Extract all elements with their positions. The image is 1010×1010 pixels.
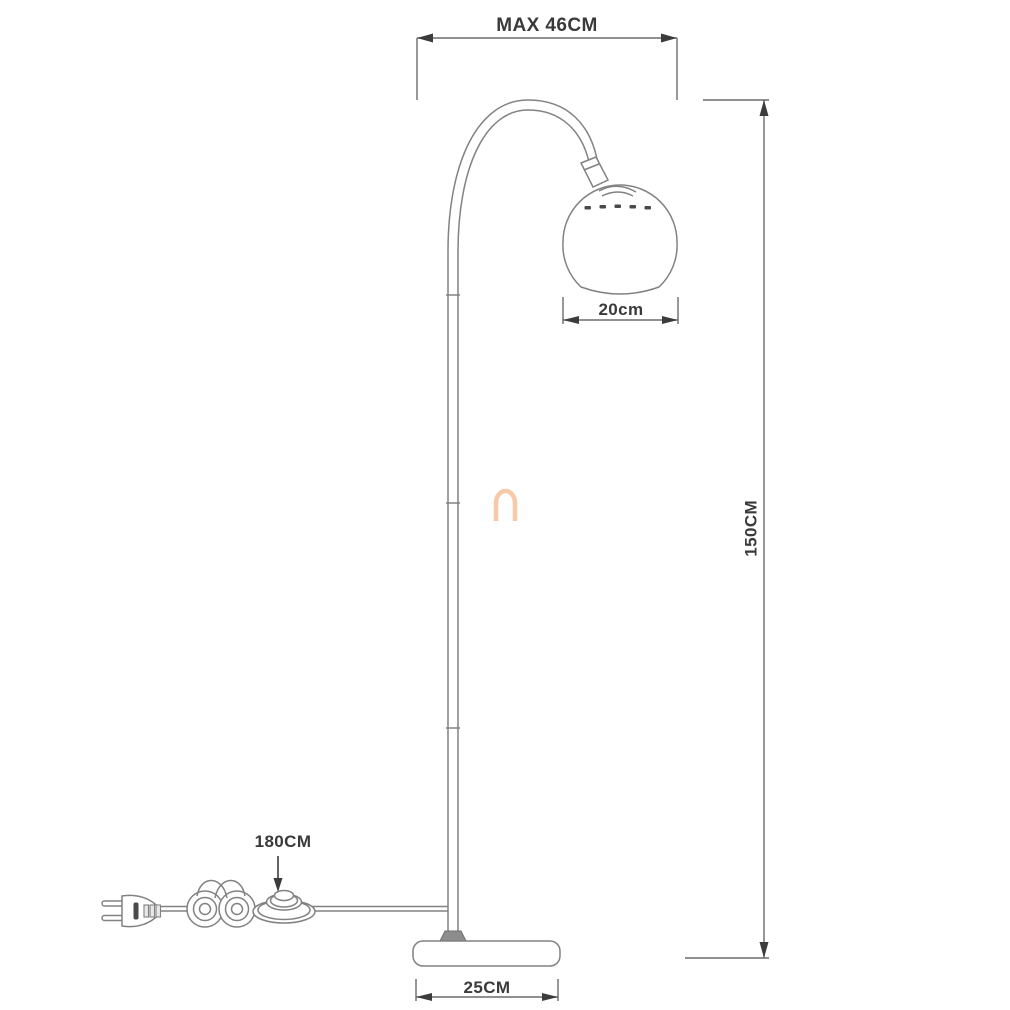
arrow-up-icon	[760, 100, 769, 116]
foot-switch-icon	[253, 891, 315, 924]
vent-slot	[600, 205, 607, 209]
arrow-down-icon	[274, 878, 283, 892]
lamp-pole	[446, 295, 460, 940]
vent-slot	[615, 205, 622, 209]
plug-grip-rib	[156, 905, 161, 917]
label-height: 150CM	[743, 448, 762, 608]
diagram-line-art	[0, 0, 1010, 1010]
label-arm-reach: MAX 46CM	[467, 16, 627, 37]
plug-prong-bottom	[102, 916, 123, 921]
power-plug-icon	[102, 895, 161, 926]
switch-button	[275, 891, 294, 901]
arrow-right-icon	[661, 34, 677, 43]
label-base-width: 25CM	[407, 979, 567, 998]
vent-slot	[585, 206, 592, 210]
vent-slot	[645, 206, 652, 210]
shade-sphere	[563, 185, 677, 294]
cord-length-callout	[274, 856, 283, 892]
coil-left-outer	[187, 891, 223, 927]
base-plate	[413, 941, 560, 966]
cord-coils-icon	[187, 880, 255, 927]
pole-base-joint	[440, 931, 466, 941]
holder-body	[581, 157, 608, 187]
plug-seam	[134, 903, 139, 920]
vent-slot	[630, 205, 637, 209]
lamp-holder	[581, 157, 608, 187]
lamp-dimension-diagram: MAX 46CM 150CM 20cm 180CM 25CM	[0, 0, 1010, 1010]
brand-watermark-icon	[496, 491, 515, 521]
plug-grip-rib	[150, 905, 155, 917]
plug-grip-rib	[144, 905, 149, 917]
coil-right-outer	[219, 891, 255, 927]
plug-prong-top	[102, 901, 123, 906]
label-shade-diameter: 20cm	[541, 301, 701, 320]
lamp-base	[413, 931, 560, 966]
lamp-shade	[563, 185, 677, 294]
arrow-left-icon	[417, 34, 433, 43]
dimension-arm-reach	[417, 34, 677, 101]
label-cord-length: 180CM	[203, 833, 363, 852]
arrow-down-icon	[760, 942, 769, 958]
